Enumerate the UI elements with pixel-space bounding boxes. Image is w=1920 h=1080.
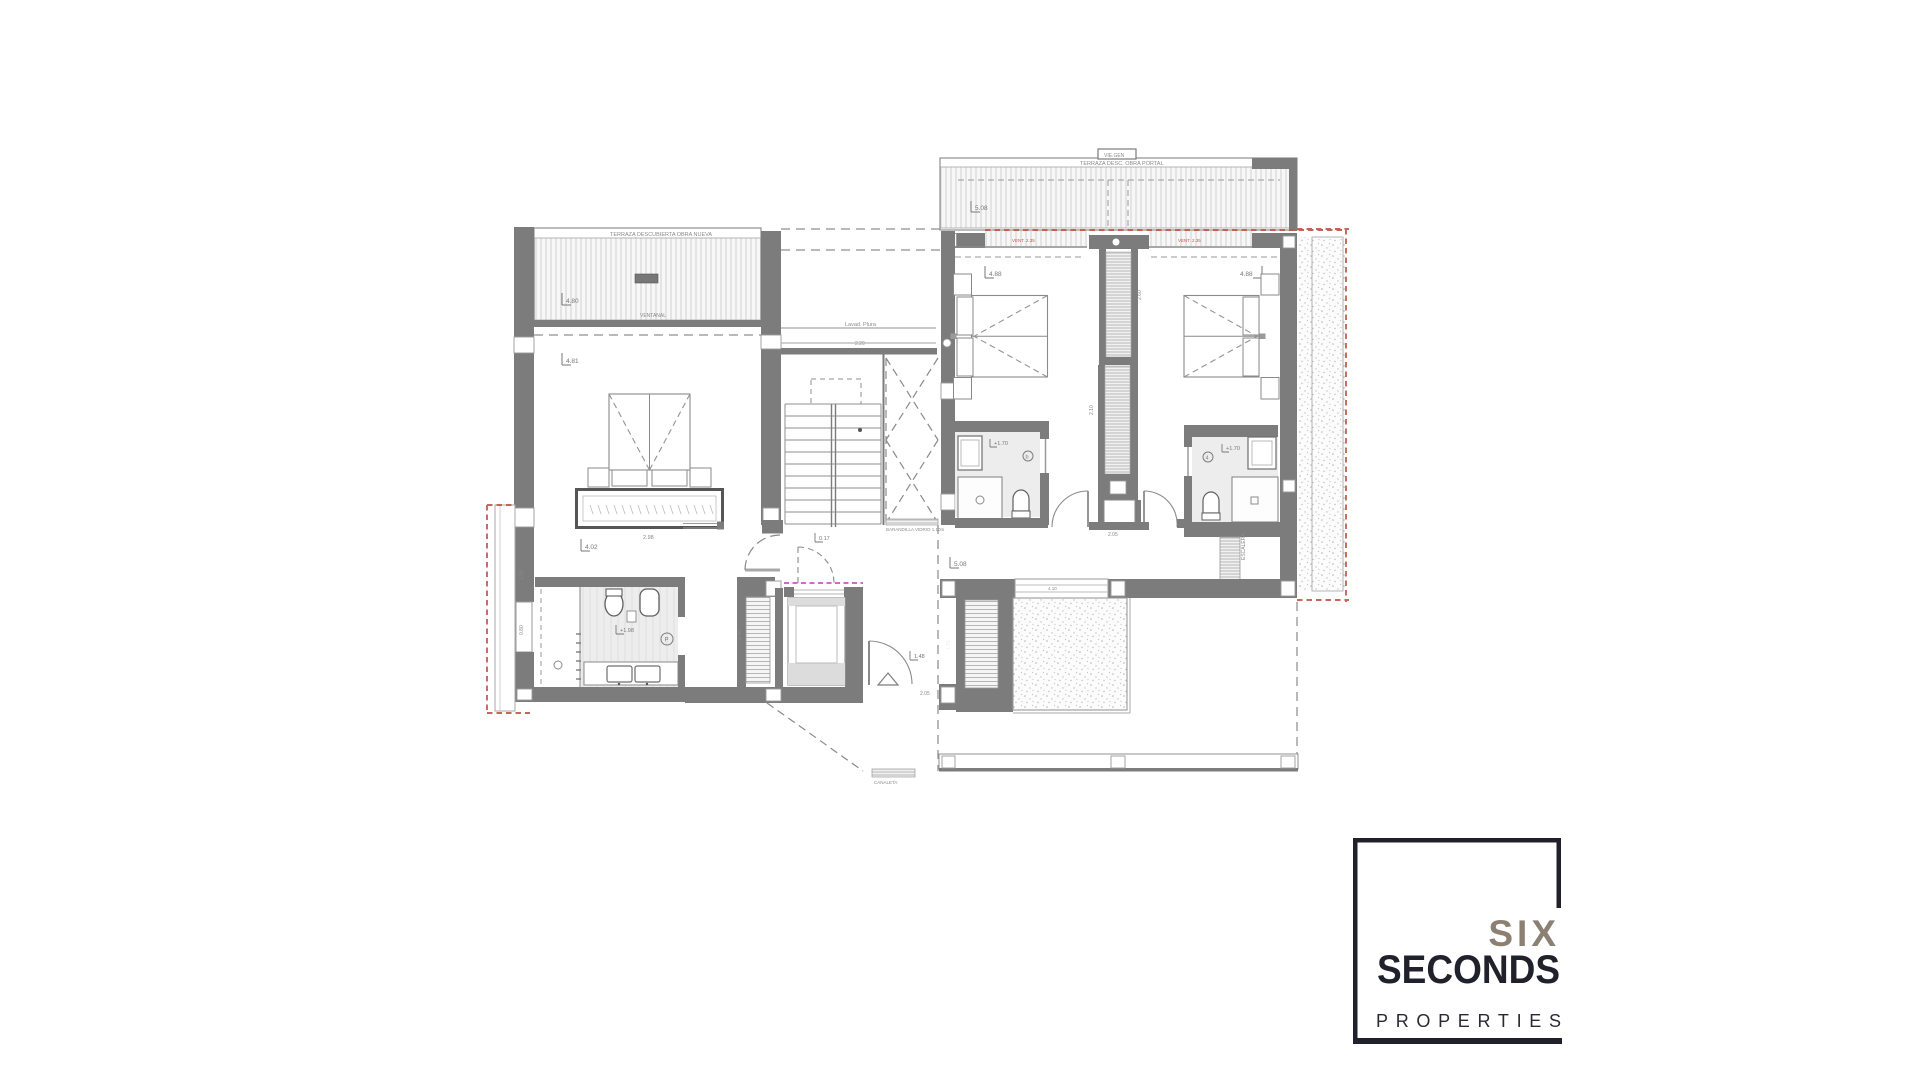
svg-text:2.60: 2.60 bbox=[1137, 290, 1143, 300]
svg-text:2.98: 2.98 bbox=[643, 535, 654, 541]
svg-text:1.75: 1.75 bbox=[946, 640, 952, 650]
svg-text:5.08: 5.08 bbox=[954, 561, 967, 568]
svg-text:Lavad. Plura: Lavad. Plura bbox=[845, 322, 877, 328]
svg-text:+1.70: +1.70 bbox=[994, 441, 1008, 447]
svg-text:1.48: 1.48 bbox=[914, 654, 925, 660]
svg-text:P: P bbox=[665, 638, 669, 644]
svg-text:2.10: 2.10 bbox=[1089, 405, 1095, 415]
svg-text:TERRAZA DESCUBIERTA OBRA NUEV: TERRAZA DESCUBIERTA OBRA NUEVA bbox=[610, 232, 712, 238]
svg-text:VENTANAL: VENTANAL bbox=[640, 313, 666, 319]
svg-text:CANALETA: CANALETA bbox=[874, 780, 897, 785]
svg-text:0.80: 0.80 bbox=[519, 625, 525, 635]
svg-text:b: b bbox=[1026, 455, 1029, 461]
svg-text:4.80: 4.80 bbox=[566, 298, 579, 305]
svg-text:+1.70: +1.70 bbox=[1226, 446, 1240, 452]
svg-text:2.40: 2.40 bbox=[737, 630, 743, 640]
svg-text:2.05: 2.05 bbox=[920, 691, 930, 697]
svg-text:TERRAZA DESC. OBRA PORTAL: TERRAZA DESC. OBRA PORTAL bbox=[1080, 161, 1164, 167]
svg-text:2.05: 2.05 bbox=[1108, 532, 1118, 538]
svg-text:SECONDS: SECONDS bbox=[1377, 948, 1560, 992]
svg-text:0.17: 0.17 bbox=[819, 536, 830, 542]
svg-text:VENT. 2.35: VENT. 2.35 bbox=[1012, 238, 1035, 243]
svg-text:1.00: 1.00 bbox=[519, 570, 525, 580]
svg-text:PROPERTIES: PROPERTIES bbox=[1376, 1011, 1561, 1031]
svg-text:4: 4 bbox=[1206, 456, 1209, 462]
svg-text:VIE.GEN: VIE.GEN bbox=[1104, 153, 1125, 159]
svg-text:4.81: 4.81 bbox=[566, 358, 579, 365]
svg-text:2.20: 2.20 bbox=[855, 341, 865, 347]
svg-text:+1.98: +1.98 bbox=[620, 628, 634, 634]
svg-text:4.02: 4.02 bbox=[585, 544, 598, 551]
svg-text:4.10: 4.10 bbox=[1048, 586, 1057, 591]
svg-text:ESCALERA: ESCALERA bbox=[1241, 533, 1247, 560]
svg-text:5.08: 5.08 bbox=[975, 205, 988, 212]
svg-text:BARANDILLA VIDRIO 1.10m: BARANDILLA VIDRIO 1.10m bbox=[886, 527, 945, 532]
svg-text:4.88: 4.88 bbox=[1240, 271, 1253, 278]
svg-text:4.88: 4.88 bbox=[989, 271, 1002, 278]
svg-text:VENT. 2.35: VENT. 2.35 bbox=[1178, 238, 1201, 243]
